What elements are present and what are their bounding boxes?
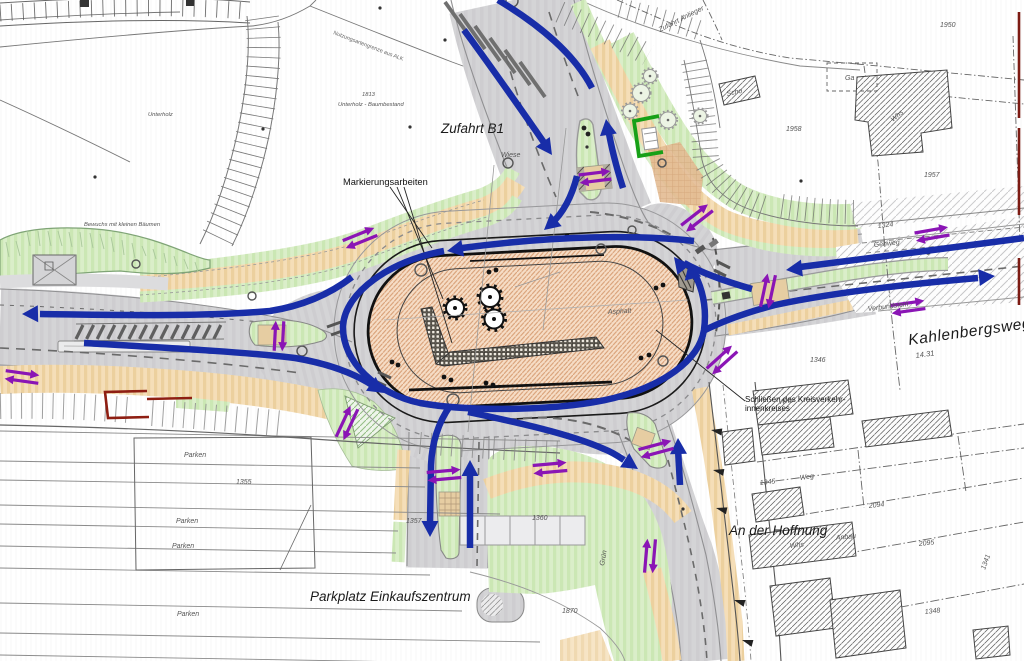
svg-text:1346: 1346 [810, 357, 826, 364]
svg-text:Parken: Parken [176, 518, 198, 525]
svg-text:Schließen des Kreisverkehr-: Schließen des Kreisverkehr- [745, 395, 846, 404]
svg-text:Wiese: Wiese [501, 152, 520, 159]
svg-text:Ga: Ga [845, 75, 854, 82]
svg-text:Markierungsarbeiten: Markierungsarbeiten [343, 177, 428, 187]
svg-text:Parken: Parken [177, 611, 199, 618]
svg-text:Parken: Parken [172, 543, 194, 550]
svg-text:Parken: Parken [184, 452, 206, 459]
svg-text:Parkplatz Einkaufszentrum: Parkplatz Einkaufszentrum [310, 589, 471, 604]
svg-text:Asphalt: Asphalt [607, 308, 633, 316]
svg-text:1360: 1360 [532, 515, 548, 522]
svg-text:An der Hoffnung: An der Hoffnung [728, 523, 828, 538]
svg-text:Unterholz: Unterholz [148, 112, 173, 118]
svg-text:1357: 1357 [406, 518, 423, 525]
svg-text:1813: 1813 [362, 92, 376, 98]
svg-text:Unterholz - Baumbestand: Unterholz - Baumbestand [338, 102, 405, 108]
svg-text:1950: 1950 [940, 22, 956, 29]
svg-text:1355: 1355 [236, 479, 252, 486]
svg-text:1870: 1870 [562, 608, 578, 615]
svg-text:1957: 1957 [924, 172, 941, 179]
svg-text:Bewuchs mit kleinen Bäumen: Bewuchs mit kleinen Bäumen [84, 222, 160, 228]
svg-text:1958: 1958 [786, 126, 802, 133]
svg-text:Zufahrt B1: Zufahrt B1 [440, 121, 504, 136]
